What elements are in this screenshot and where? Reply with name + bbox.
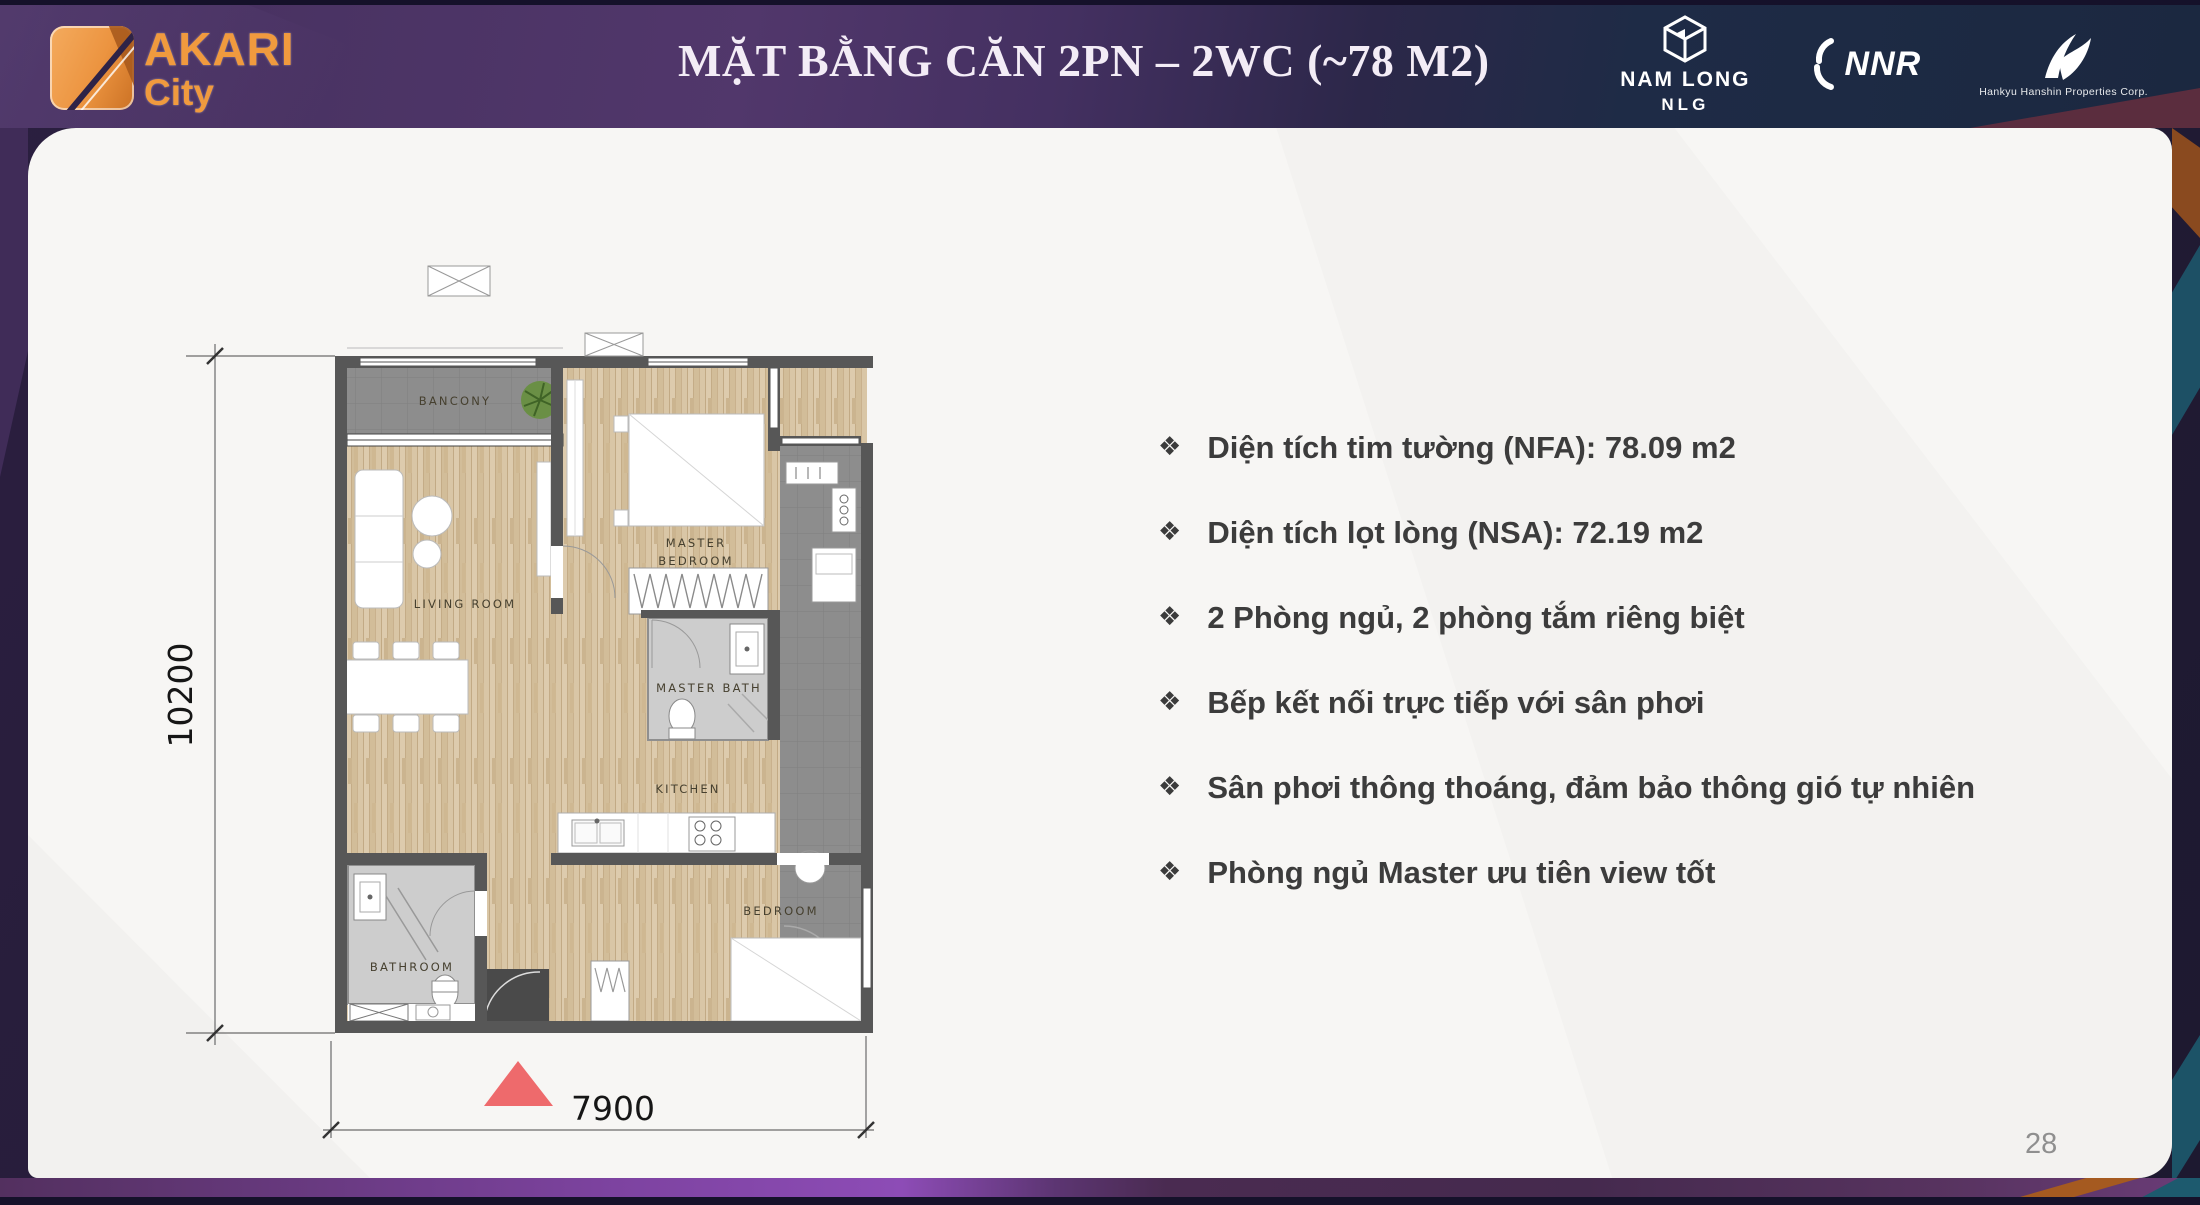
label-bathroom: BATHROOM	[370, 960, 454, 974]
diamond-bullet-icon: ❖	[1158, 428, 1181, 467]
diamond-bullet-icon: ❖	[1158, 853, 1181, 892]
right-edge-teal-decoration	[2172, 245, 2200, 435]
label-living-room: LIVING ROOM	[414, 597, 516, 611]
list-item-text: Phòng ngủ Master ưu tiên view tốt	[1207, 853, 1715, 892]
akari-city-logo: AKARI City	[50, 26, 295, 111]
nnr-name: NNR	[1845, 45, 1922, 84]
nam-long-logo: NAM LONG NLG	[1620, 14, 1750, 115]
ac-units	[347, 266, 643, 356]
dimension-height: 10200	[161, 643, 200, 748]
diamond-bullet-icon: ❖	[1158, 768, 1181, 807]
label-master-bath: MASTER BATH	[656, 681, 762, 695]
floor-plan: BANCONY LIVING ROOM MASTER BEDROOM MASTE…	[148, 248, 928, 1168]
list-item: ❖ Phòng ngủ Master ưu tiên view tốt	[1158, 853, 2172, 892]
floor-plan-drawing: BANCONY LIVING ROOM MASTER BEDROOM MASTE…	[148, 248, 928, 1168]
page-number: 28	[2025, 1128, 2057, 1161]
list-item-text: Diện tích lọt lòng (NSA): 72.19 m2	[1207, 513, 1703, 552]
nam-long-cube-icon	[1659, 14, 1711, 64]
list-item: ❖ Sân phơi thông thoáng, đảm bảo thông g…	[1158, 768, 2172, 807]
header-bar: AKARI City MẶT BẰNG CĂN 2PN – 2WC (~78 M…	[0, 0, 2200, 128]
master-bath-area	[648, 618, 770, 740]
akari-logo-text: AKARI City	[144, 26, 295, 111]
hankyu-caption: Hankyu Hanshin Properties Corp.	[1979, 86, 2148, 98]
list-item-text: Diện tích tim tường (NFA): 78.09 m2	[1207, 428, 1736, 467]
list-item-text: Sân phơi thông thoáng, đảm bảo thông gió…	[1207, 768, 1975, 807]
nam-long-code: NLG	[1661, 95, 1709, 115]
entry-area	[483, 969, 549, 1021]
bottom-bar-teal-segment	[2128, 1178, 2200, 1197]
brand-name: AKARI	[144, 26, 295, 72]
header-top-line	[0, 0, 2200, 5]
hankyu-hanshin-logo: Hankyu Hanshin Properties Corp.	[1979, 30, 2148, 98]
list-item: ❖ Diện tích tim tường (NFA): 78.09 m2	[1158, 428, 2172, 467]
bottom-edge-strip	[0, 1197, 2200, 1205]
hankyu-h-swoosh-icon	[2033, 30, 2095, 82]
partner-logos: NAM LONG NLG NNR Hankyu Hanshin Properti…	[1620, 14, 2148, 114]
diamond-bullet-icon: ❖	[1158, 598, 1181, 637]
bottom-accent-bar	[0, 1178, 2200, 1197]
label-master-bedroom-1: MASTER	[666, 536, 727, 550]
slide: AKARI City MẶT BẰNG CĂN 2PN – 2WC (~78 M…	[0, 0, 2200, 1205]
kitchen-furniture	[558, 813, 775, 853]
dimension-width: 7900	[571, 1089, 655, 1128]
diamond-bullet-icon: ❖	[1158, 683, 1181, 722]
list-item-text: 2 Phòng ngủ, 2 phòng tắm riêng biệt	[1207, 598, 1744, 637]
nam-long-name: NAM LONG	[1620, 68, 1750, 92]
right-edge-teal-decoration-2	[2172, 1035, 2200, 1185]
bathroom-area	[348, 865, 475, 1021]
bottom-bar-orange-segment	[2020, 1178, 2140, 1197]
entrance-marker-triangle	[484, 1061, 553, 1106]
label-balcony: BANCONY	[419, 394, 491, 408]
label-bedroom: BEDROOM	[743, 904, 818, 918]
list-item-text: Bếp kết nối trực tiếp với sân phơi	[1207, 683, 1704, 722]
feature-list: ❖ Diện tích tim tường (NFA): 78.09 m2 ❖ …	[1158, 428, 2172, 938]
content-panel: BANCONY LIVING ROOM MASTER BEDROOM MASTE…	[28, 128, 2172, 1178]
list-item: ❖ Diện tích lọt lòng (NSA): 72.19 m2	[1158, 513, 2172, 552]
nnr-arcs-icon	[1809, 35, 1843, 93]
nnr-logo: NNR	[1809, 35, 1922, 93]
akari-logo-icon	[50, 26, 134, 110]
diamond-bullet-icon: ❖	[1158, 513, 1181, 552]
label-kitchen: KITCHEN	[655, 782, 720, 796]
wardrobe	[629, 568, 768, 614]
right-edge-orange-decoration	[2172, 128, 2200, 238]
slide-title: MẶT BẰNG CĂN 2PN – 2WC (~78 M2)	[678, 34, 1490, 87]
drying-yard-area	[780, 446, 861, 1021]
list-item: ❖ 2 Phòng ngủ, 2 phòng tắm riêng biệt	[1158, 598, 2172, 637]
list-item: ❖ Bếp kết nối trực tiếp với sân phơi	[1158, 683, 2172, 722]
brand-subname: City	[144, 74, 295, 111]
entry-closet	[591, 961, 629, 1021]
label-master-bedroom-2: BEDROOM	[658, 554, 733, 568]
left-edge-decoration	[0, 120, 28, 540]
